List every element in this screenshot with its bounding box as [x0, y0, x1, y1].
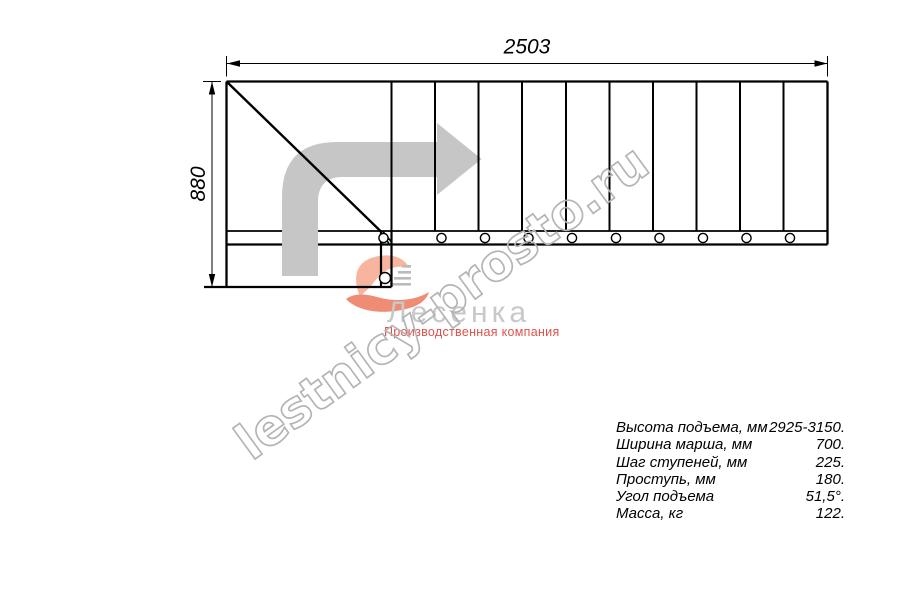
spec-label: Проступь, мм	[616, 471, 716, 488]
spec-row: Масса, кг 122.	[616, 505, 845, 522]
baluster-hole	[524, 233, 533, 242]
spec-label: Угол подъема	[616, 488, 714, 505]
baluster-hole	[785, 233, 794, 242]
spec-row: Высота подъема, мм 2925-3150.	[616, 419, 845, 436]
baluster-hole	[379, 233, 388, 242]
top-dimension: 2503	[227, 36, 828, 77]
baluster-hole	[567, 233, 576, 242]
baluster-hole	[742, 233, 751, 242]
specs-table: Высота подъема, мм 2925-3150. Ширина мар…	[616, 419, 845, 523]
spec-value: 51,5°.	[806, 488, 845, 505]
left-dimension-label: 880	[187, 166, 210, 201]
baluster-hole	[380, 273, 391, 284]
spec-label: Ширина марша, мм	[616, 436, 752, 453]
logo-tagline-text: Производственная компания	[384, 325, 560, 339]
spec-row: Угол подъема 51,5°.	[616, 488, 845, 505]
top-dimension-label: 2503	[503, 36, 551, 59]
spec-value: 180.	[816, 471, 845, 488]
logo-steps-icon	[390, 265, 411, 286]
baluster-hole	[655, 233, 664, 242]
spec-value: 700.	[816, 436, 845, 453]
baluster-holes	[379, 233, 795, 283]
baluster-hole	[611, 233, 620, 242]
baluster-hole	[698, 233, 707, 242]
baluster-hole	[480, 233, 489, 242]
spec-value: 225.	[816, 454, 845, 471]
spec-value: 2925-3150.	[769, 419, 845, 436]
spec-label: Шаг ступеней, мм	[616, 454, 747, 471]
baluster-hole	[437, 233, 446, 242]
spec-row: Шаг ступеней, мм 225.	[616, 454, 845, 471]
spec-label: Масса, кг	[616, 505, 683, 522]
stair-drawing-page: 2503 880 Лесенка Производственная компан…	[0, 0, 900, 600]
spec-row: Проступь, мм 180.	[616, 471, 845, 488]
spec-value: 122.	[816, 505, 845, 522]
spec-label: Высота подъема, мм	[616, 419, 768, 436]
spec-row: Ширина марша, мм 700.	[616, 436, 845, 453]
left-dimension: 880	[187, 82, 221, 288]
